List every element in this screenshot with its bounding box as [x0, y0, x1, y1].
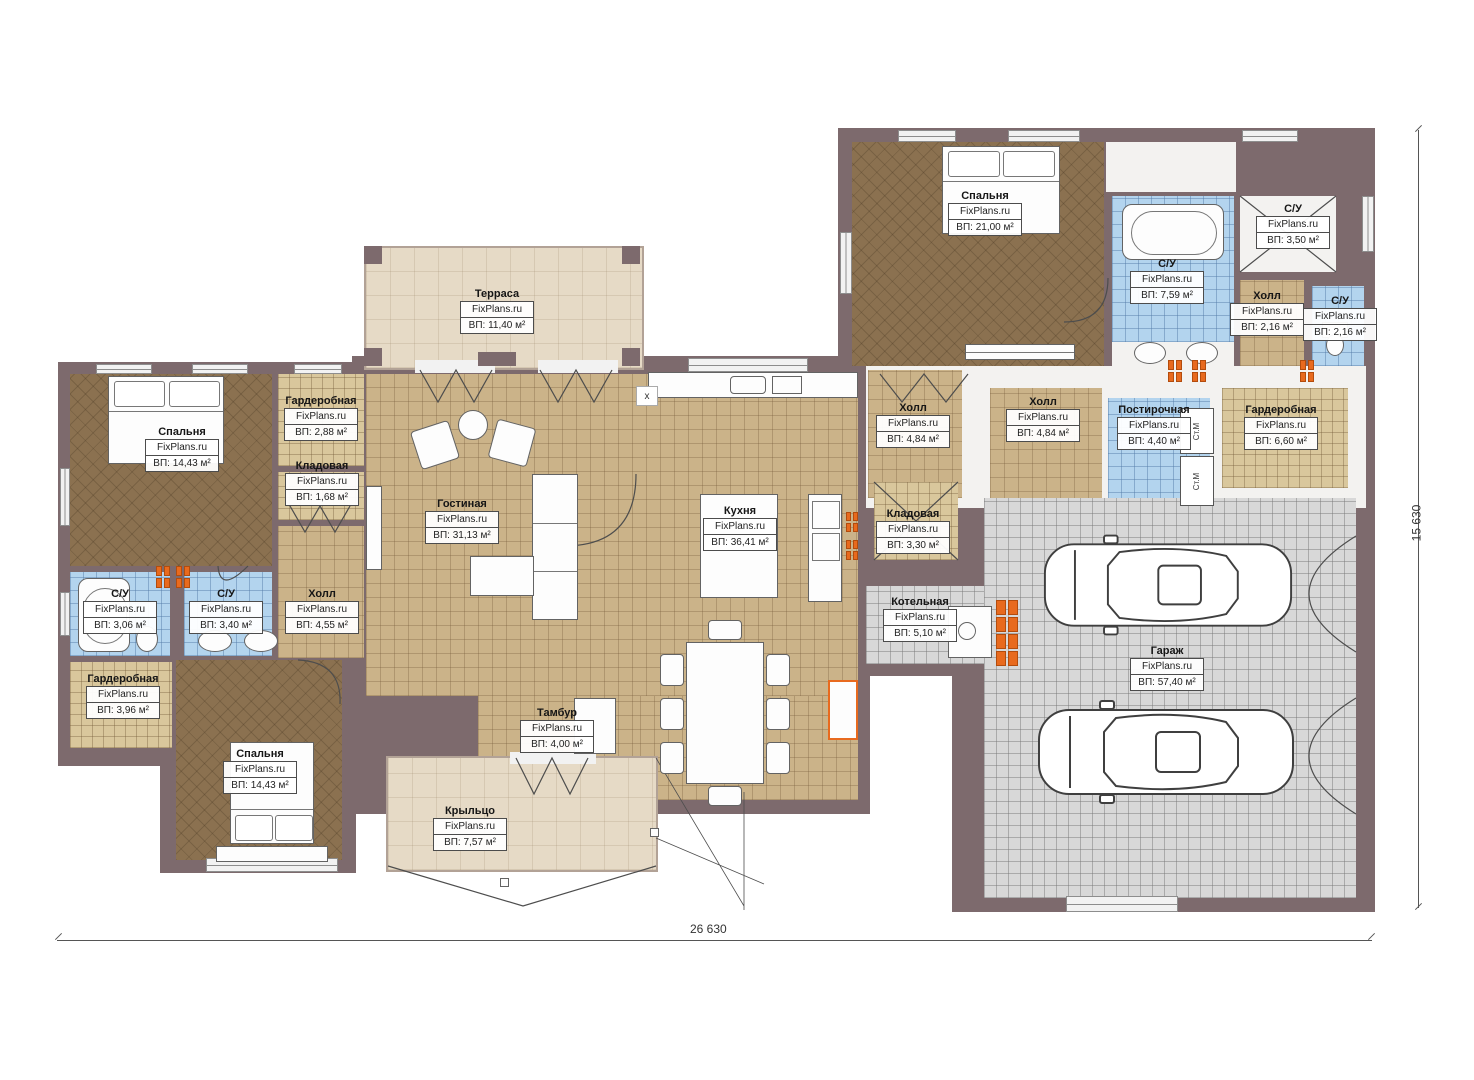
- sofa: [532, 474, 578, 620]
- bifold-door-zigzag: [290, 506, 350, 532]
- dimension-label-bottom: 26 630: [690, 922, 727, 936]
- room-label-hall-455: Холл FixPlans.ru ВП: 4,55 м²: [285, 588, 359, 634]
- porch-door-zigzag: [516, 758, 588, 794]
- room-label-hall-216: Холл FixPlans.ru ВП: 2,16 м²: [1230, 290, 1304, 336]
- room-label-living: Гостиная FixPlans.ru ВП: 31,13 м²: [425, 498, 499, 544]
- room-label-garage: Гараж FixPlans.ru ВП: 57,40 м²: [1130, 645, 1204, 691]
- towel-radiator: [1168, 360, 1182, 382]
- room-label-storage-168: Кладовая FixPlans.ru ВП: 1,68 м²: [285, 460, 359, 506]
- dimension-label-right: 15 630: [1409, 505, 1423, 542]
- washing-machine: Ст.М: [1180, 456, 1214, 506]
- floor-plan: Ст.М Ст.М: [0, 0, 1474, 1080]
- room-label-boiler: Котельная FixPlans.ru ВП: 5,10 м²: [883, 596, 957, 642]
- room-label-bedroom-left: Спальня FixPlans.ru ВП: 14,43 м²: [145, 426, 219, 472]
- chair: [708, 786, 742, 806]
- porch-roof-lines: [388, 866, 656, 906]
- dimension-line-bottom: [57, 940, 1372, 941]
- boiler-dial: [958, 622, 976, 640]
- room-label-bath-759: С/У FixPlans.ru ВП: 7,59 м²: [1130, 258, 1204, 304]
- car: [1036, 698, 1296, 806]
- dresser: [965, 344, 1075, 360]
- room-label-hall-484a: Холл FixPlans.ru ВП: 4,84 м²: [876, 402, 950, 448]
- radiator: [846, 512, 858, 532]
- door-arc: [218, 566, 248, 580]
- room-label-bedroom-master: Спальня FixPlans.ru ВП: 21,00 м²: [948, 190, 1022, 236]
- room-label-bedroom-bottom: Спальня FixPlans.ru ВП: 14,43 м²: [223, 748, 297, 794]
- chair: [708, 620, 742, 640]
- door-arc: [1064, 278, 1108, 322]
- door-arc: [298, 660, 340, 704]
- radiator: [996, 600, 1018, 666]
- appliance-column: [808, 494, 842, 602]
- room-label-porch: Крыльцо FixPlans.ru ВП: 7,57 м²: [433, 805, 507, 851]
- room-label-bath-340: С/У FixPlans.ru ВП: 3,40 м²: [189, 588, 263, 634]
- dining-table: [686, 642, 764, 784]
- survey-marker: [650, 828, 659, 837]
- tv-console: [366, 486, 382, 570]
- chair: [766, 742, 790, 774]
- room-label-terrace: Терраса FixPlans.ru ВП: 11,40 м²: [460, 288, 534, 334]
- hall-door-zigzag: [880, 374, 968, 402]
- room-label-tambour: Тамбур FixPlans.ru ВП: 4,00 м²: [520, 707, 594, 753]
- chair: [660, 654, 684, 686]
- coffee-table: [458, 410, 488, 440]
- garage-gate-arc: [1309, 536, 1356, 652]
- towel-radiator: [1300, 360, 1314, 382]
- towel-radiator: [176, 566, 190, 588]
- room-label-wardrobe-288: Гардеробная FixPlans.ru ВП: 2,88 м²: [284, 395, 358, 441]
- chair: [766, 654, 790, 686]
- radiator-panel: [828, 680, 858, 740]
- french-door-zigzag: [420, 370, 492, 402]
- room-label-wardrobe-396: Гардеробная FixPlans.ru ВП: 3,96 м²: [86, 673, 160, 719]
- radiator: [846, 540, 858, 560]
- kitchen-sink: [730, 376, 766, 394]
- room-label-hall-484b: Холл FixPlans.ru ВП: 4,84 м²: [1006, 396, 1080, 442]
- towel-radiator: [1192, 360, 1206, 382]
- axis-marker: x: [636, 386, 658, 406]
- chair: [766, 698, 790, 730]
- chair: [660, 698, 684, 730]
- bench: [216, 846, 328, 862]
- chair: [660, 742, 684, 774]
- stove: [772, 376, 802, 394]
- room-label-bath-306: С/У FixPlans.ru ВП: 3,06 м²: [83, 588, 157, 634]
- bathtub: [1122, 204, 1224, 260]
- french-door-zigzag: [540, 370, 612, 402]
- room-label-bath-350: С/У FixPlans.ru ВП: 3,50 м²: [1256, 203, 1330, 249]
- garage-gate-arc: [1309, 698, 1356, 814]
- room-label-kitchen: Кухня FixPlans.ru ВП: 36,41 м²: [703, 505, 777, 551]
- room-label-wardrobe-660: Гардеробная FixPlans.ru ВП: 6,60 м²: [1244, 404, 1318, 450]
- survey-marker: [500, 878, 509, 887]
- sink: [1134, 342, 1166, 364]
- room-label-laundry: Постирочная FixPlans.ru ВП: 4,40 м²: [1117, 404, 1191, 450]
- sofa-chaise: [470, 556, 534, 596]
- room-label-storage-330: Кладовая FixPlans.ru ВП: 3,30 м²: [876, 508, 950, 554]
- car: [1042, 534, 1294, 636]
- towel-radiator: [156, 566, 170, 588]
- room-label-bath-216: С/У FixPlans.ru ВП: 2,16 м²: [1303, 295, 1377, 341]
